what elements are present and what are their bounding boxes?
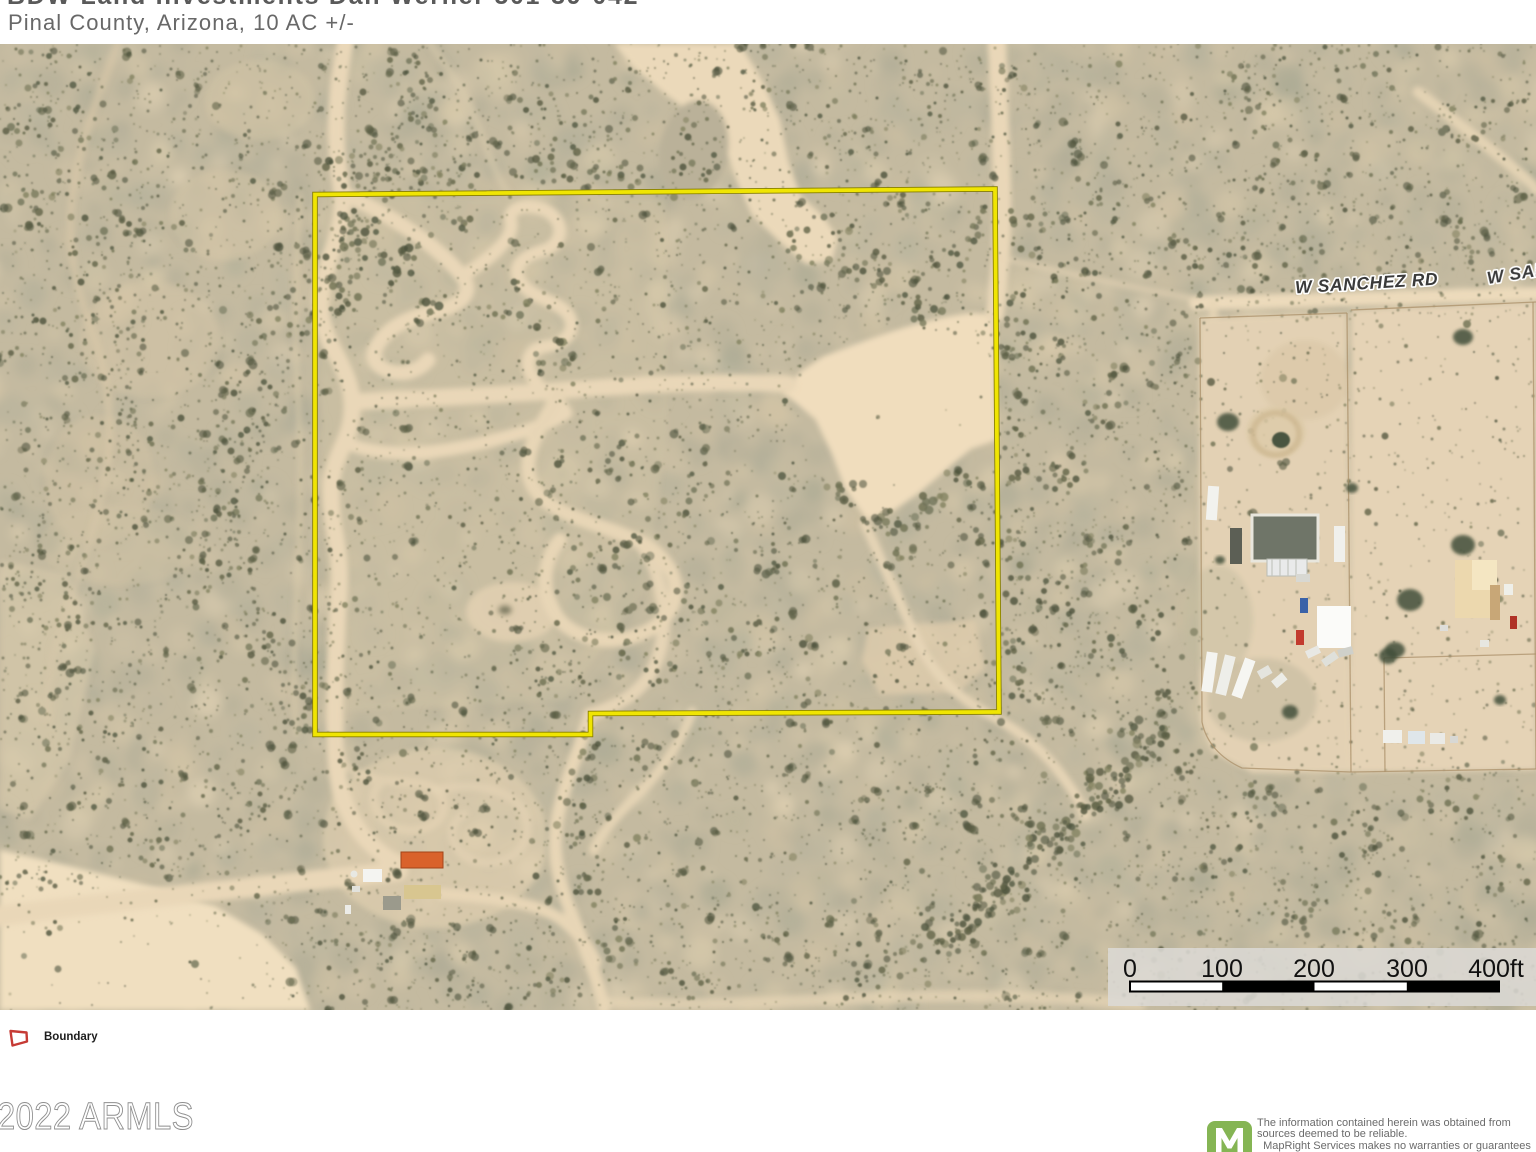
svg-text:0: 0 [1123,955,1137,983]
svg-text:200: 200 [1293,955,1335,983]
svg-text:300: 300 [1386,955,1428,983]
svg-text:100: 100 [1201,955,1243,983]
svg-text:400ft: 400ft [1468,955,1524,983]
